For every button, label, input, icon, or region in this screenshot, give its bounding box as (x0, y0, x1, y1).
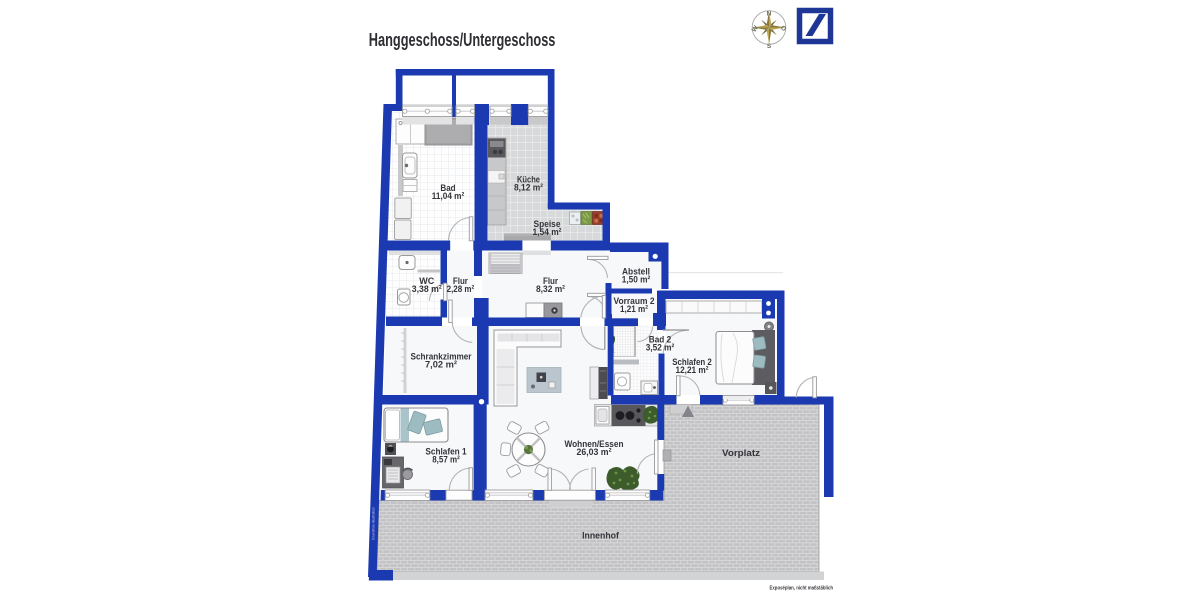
svg-text:Vorplatz: Vorplatz (722, 448, 760, 459)
svg-text:2,28 m²: 2,28 m² (447, 284, 475, 295)
svg-text:Innenhof: Innenhof (582, 530, 620, 541)
svg-text:Hanggeschoss/Untergeschoss: Hanggeschoss/Untergeschoss (369, 30, 556, 50)
svg-text:Exposéplan, nicht maßstäblich: Exposéplan, nicht maßstäblich (770, 585, 834, 591)
svg-text:11,04 m²: 11,04 m² (432, 191, 465, 202)
svg-text:8,57 m²: 8,57 m² (432, 455, 460, 466)
svg-text:26,03 m²: 26,03 m² (577, 447, 612, 458)
svg-text:1,54 m²: 1,54 m² (533, 227, 562, 238)
svg-text:3,52 m²: 3,52 m² (646, 342, 675, 353)
svg-text:8,32 m²: 8,32 m² (536, 284, 565, 295)
svg-text:S: S (767, 43, 772, 50)
svg-text:8,12 m²: 8,12 m² (514, 183, 543, 194)
svg-text:N: N (767, 11, 772, 18)
svg-text:1,21 m²: 1,21 m² (620, 304, 648, 315)
svg-text:Grundriss-Illustration: Grundriss-Illustration (372, 507, 376, 540)
svg-text:7,02 m²: 7,02 m² (425, 359, 457, 370)
svg-text:3,38 m²: 3,38 m² (412, 284, 442, 295)
svg-text:1,50 m²: 1,50 m² (622, 275, 651, 286)
svg-text:12,21 m²: 12,21 m² (676, 365, 709, 376)
